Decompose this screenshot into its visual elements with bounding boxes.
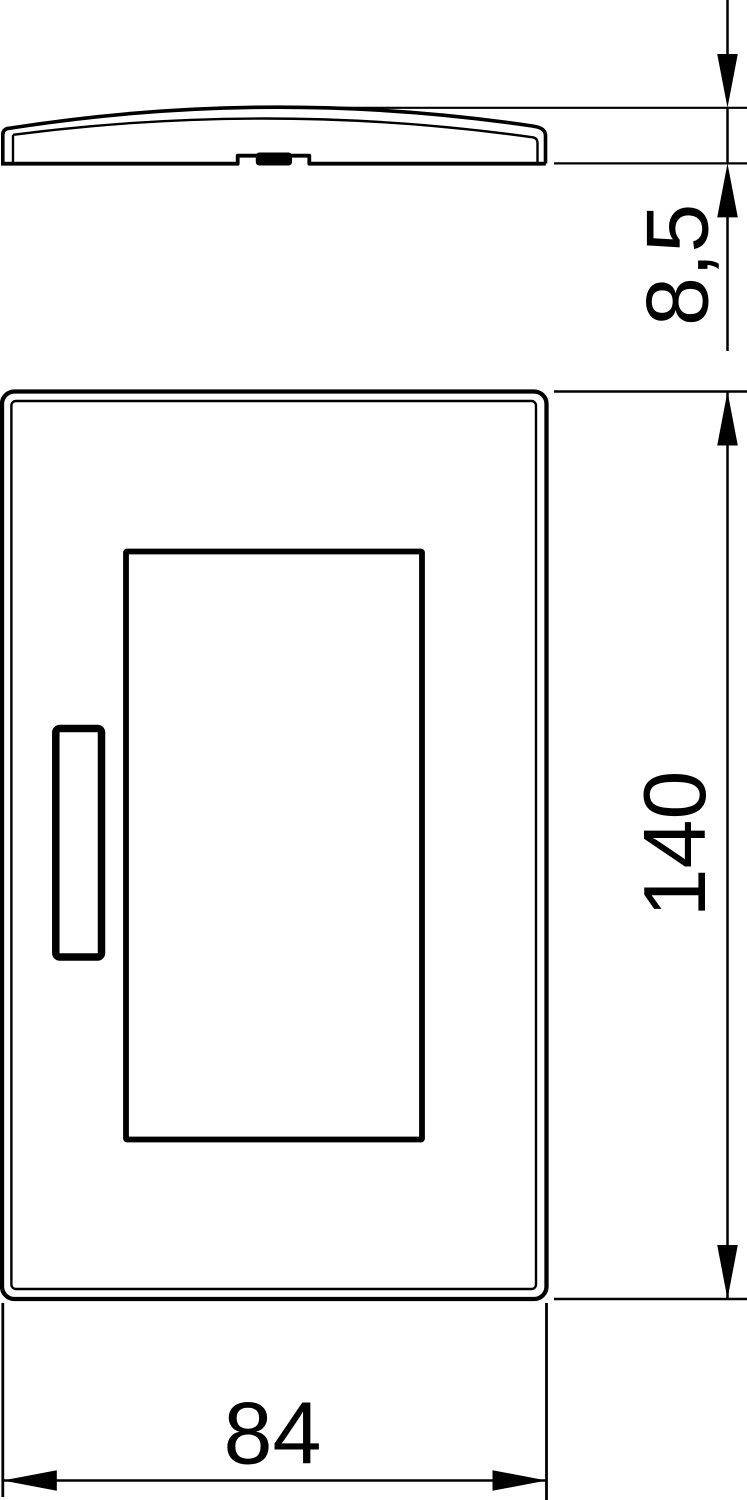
svg-text:8,5: 8,5 xyxy=(628,204,727,326)
svg-text:140: 140 xyxy=(625,771,724,918)
svg-text:84: 84 xyxy=(224,1384,322,1483)
